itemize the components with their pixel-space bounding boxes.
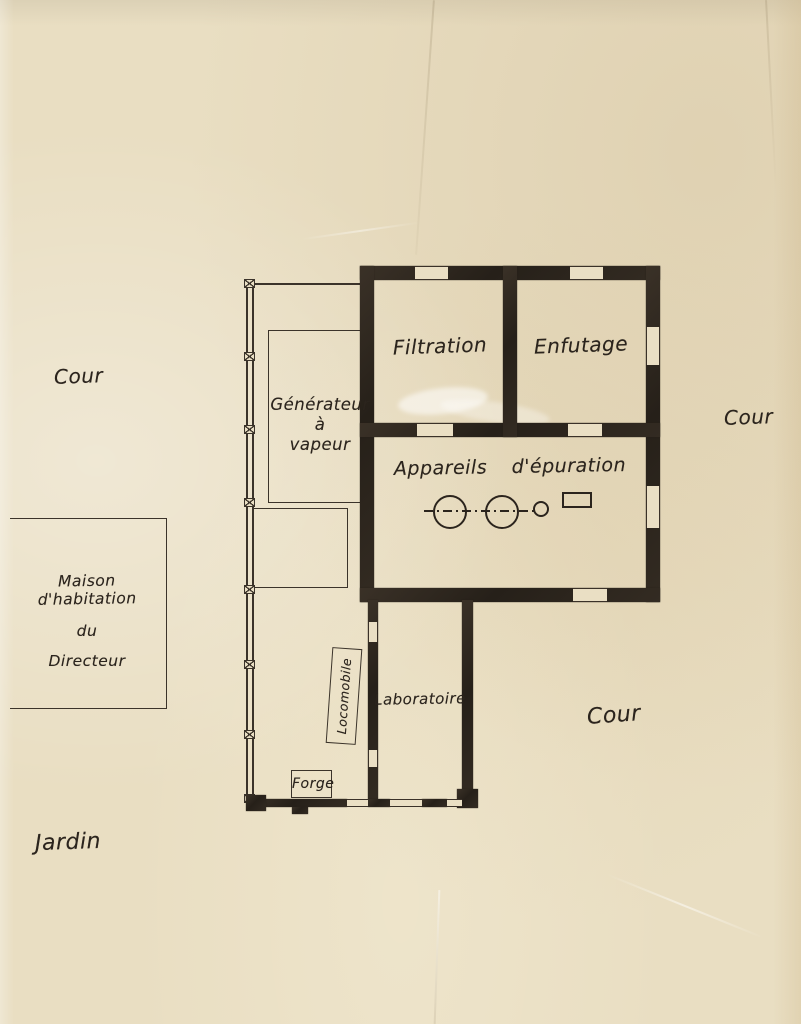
- wall-shed-bottom-pier: [368, 799, 390, 807]
- purification-box-symbol: [562, 492, 592, 508]
- window-opening: [347, 799, 368, 807]
- window-opening: [415, 266, 448, 280]
- wall-corner-block-left: [246, 795, 266, 811]
- locomobile-outline: Locomobile: [326, 647, 363, 745]
- shed-middle-room-outline: [252, 508, 348, 588]
- window-opening: [646, 486, 660, 528]
- wall-bottom-tab: [292, 807, 308, 814]
- label-appareils-word1: Appareils: [394, 456, 488, 480]
- window-opening: [646, 327, 660, 365]
- label-locomobile: Locomobile: [334, 657, 354, 734]
- column-post-icon: [244, 660, 255, 669]
- wall-main-bottom: [360, 588, 660, 602]
- paper-crease: [606, 873, 764, 939]
- shed-outer-wall-line: [246, 283, 248, 807]
- label-maison-line2: du: [12, 622, 162, 640]
- window-opening: [417, 423, 453, 437]
- label-appareils-word2: d'épuration: [511, 454, 626, 478]
- label-maison-line1: Maison d'habitation: [12, 571, 163, 610]
- shed-top-wall-line: [247, 283, 360, 285]
- label-maison-line3: Directeur: [12, 652, 162, 670]
- purification-tank-symbol: [433, 495, 467, 529]
- column-post-icon: [244, 585, 255, 594]
- label-generateur-line3: vapeur: [266, 435, 374, 455]
- purification-tank-symbol: [485, 495, 519, 529]
- column-post-icon: [244, 352, 255, 361]
- forge-outline: Forge: [291, 770, 332, 798]
- window-opening: [447, 799, 462, 807]
- wall-shed-bottom-segment: [422, 799, 447, 807]
- label-enfutage: Enfutage: [515, 331, 648, 360]
- label-filtration: Filtration: [376, 332, 505, 360]
- label-generateur-line1: Générateur: [266, 395, 374, 415]
- window-opening: [368, 622, 378, 642]
- column-post-icon: [244, 279, 255, 288]
- paper-crease: [765, 0, 777, 190]
- window-opening: [573, 588, 607, 602]
- window-opening: [570, 266, 603, 280]
- label-jardin: Jardin: [35, 829, 102, 856]
- paper-crease: [300, 222, 419, 241]
- window-opening: [368, 750, 378, 767]
- label-cour-bottom: Cour: [586, 701, 641, 730]
- column-post-icon: [244, 498, 255, 507]
- label-laboratoire: Laboratoire: [374, 689, 466, 709]
- label-forge: Forge: [292, 776, 334, 792]
- column-post-icon: [244, 730, 255, 739]
- column-post-icon: [244, 425, 255, 434]
- window-opening: [568, 423, 602, 437]
- label-cour-right: Cour: [724, 404, 774, 430]
- paper-crease: [415, 0, 435, 255]
- label-maison: Maison d'habitation du Directeur: [12, 572, 162, 670]
- label-generateur: Générateur à vapeur: [266, 395, 374, 455]
- purification-small-tank-symbol: [533, 501, 549, 517]
- label-generateur-line2: à: [266, 415, 374, 435]
- window-opening: [390, 799, 422, 807]
- paper-crease: [434, 890, 441, 1024]
- label-appareils: Appareils d'épuration: [374, 454, 646, 481]
- label-cour-left: Cour: [54, 363, 104, 389]
- floor-plan-drawing: Locomobile Forge Cour Cour Cour Jardin F…: [0, 0, 801, 1024]
